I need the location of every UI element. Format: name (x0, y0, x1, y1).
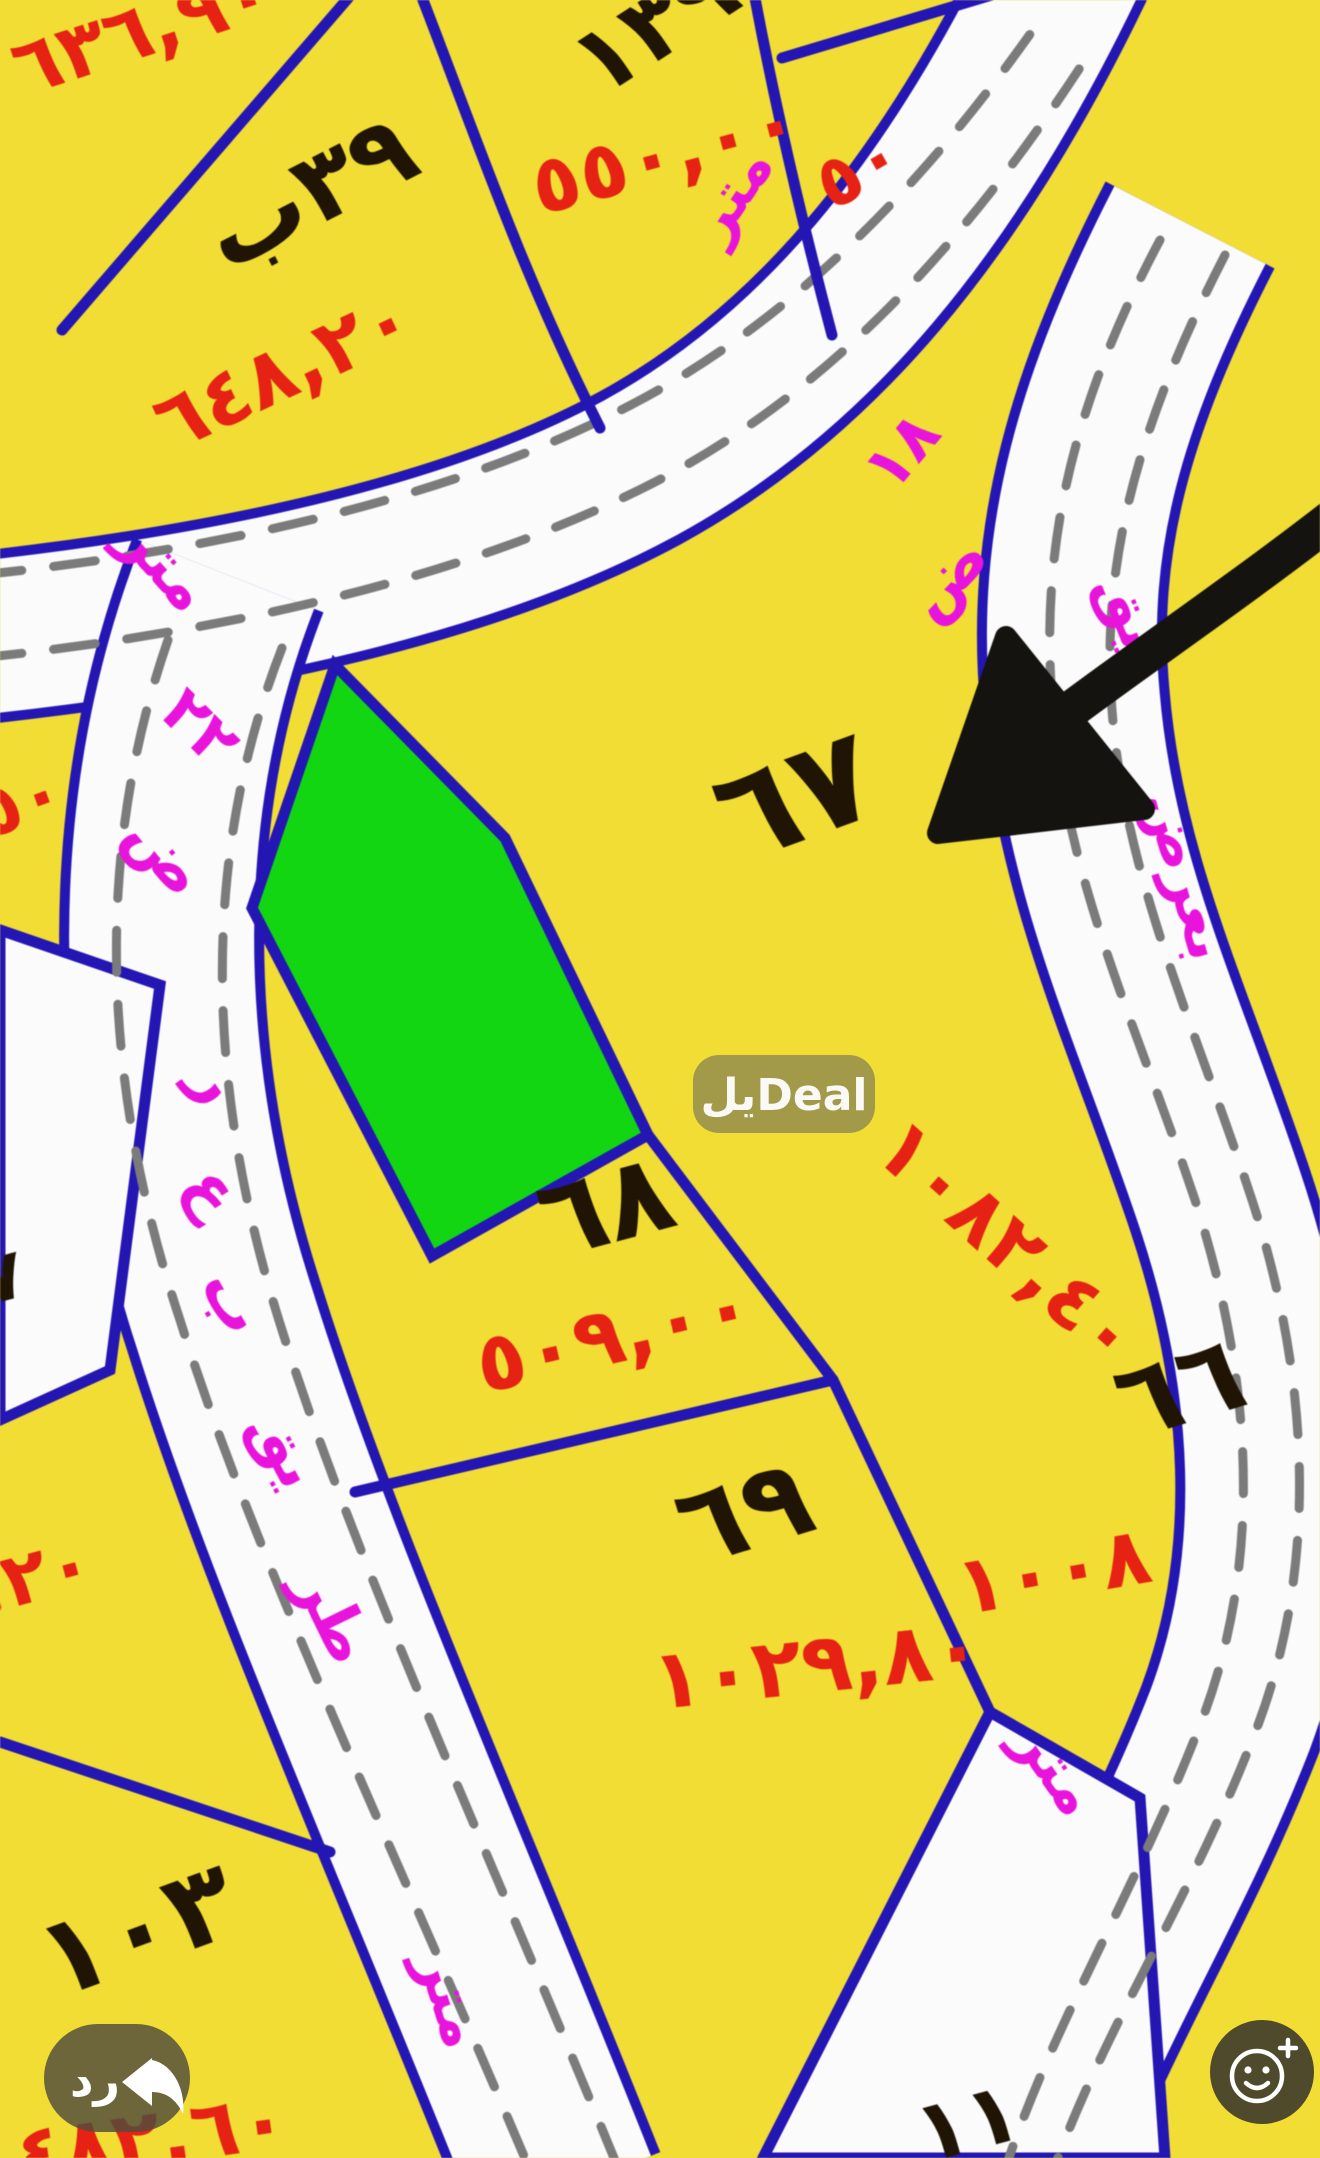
chat-media-viewer: ١٣٩ ٣٩ب ٦٧ ٦٨ ٦٩ ٦٦ ١٠٣ ١١ ٧ ٦٣٦,٩٠ ٦٤٨,… (0, 0, 1320, 2158)
chat-overlay: يلDeal رد (0, 0, 1320, 2158)
watermark: يلDeal (693, 1055, 875, 1133)
add-reaction-circle[interactable] (1210, 2020, 1314, 2124)
reply-button[interactable]: رد (44, 2024, 190, 2132)
watermark-text: يلDeal (701, 1070, 868, 1121)
add-reaction-button[interactable] (1210, 2020, 1314, 2124)
reply-button-label[interactable]: رد (70, 2053, 120, 2107)
